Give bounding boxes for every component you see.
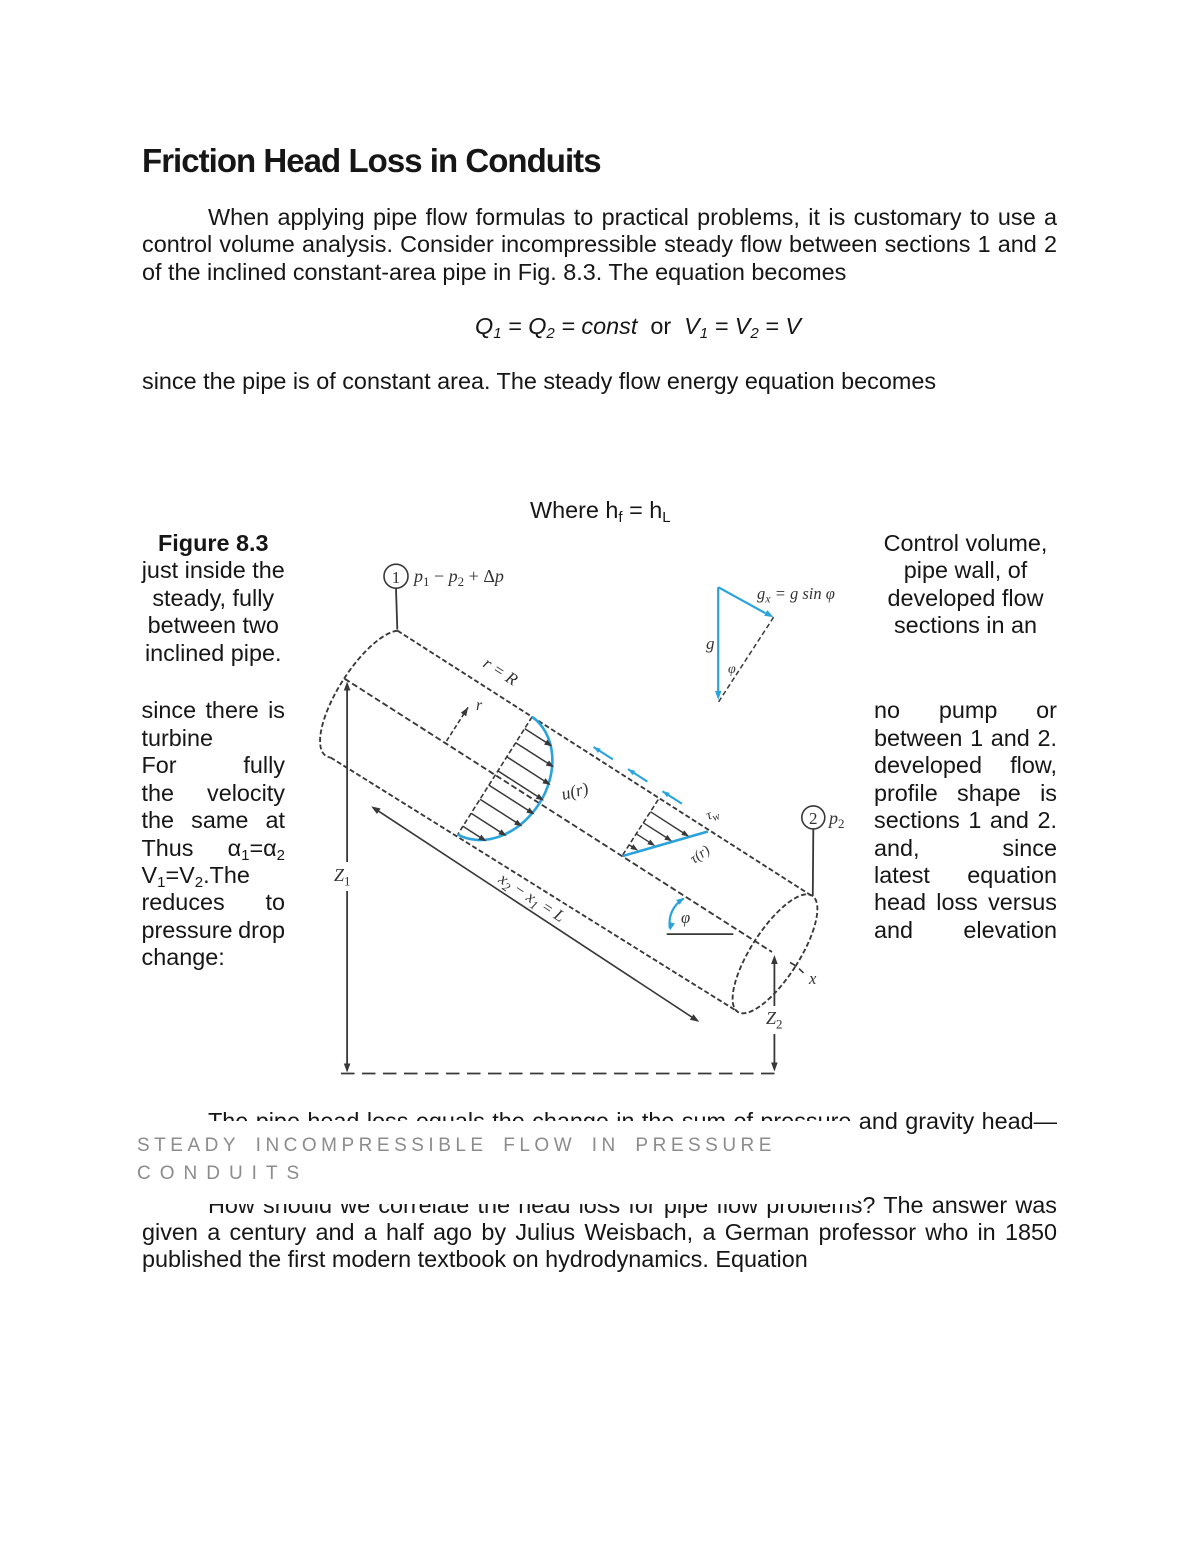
svg-text:τ(r): τ(r) (687, 842, 713, 867)
svg-text:p1 − p2 + Δp: p1 − p2 + Δp (412, 566, 504, 589)
svg-text:1: 1 (392, 568, 401, 587)
svg-text:2: 2 (809, 809, 818, 828)
svg-text:Z1: Z1 (334, 865, 351, 889)
svg-text:u(r): u(r) (559, 778, 590, 804)
svg-text:r = R: r = R (480, 653, 522, 689)
svg-text:r: r (476, 697, 483, 714)
svg-text:x: x (808, 969, 817, 988)
svg-text:g: g (706, 634, 715, 653)
svg-text:gx = g sin φ: gx = g sin φ (757, 584, 835, 606)
svg-text:φ: φ (728, 662, 736, 677)
svg-text:τw: τw (704, 805, 722, 825)
svg-text:p2: p2 (827, 808, 845, 831)
svg-text:Z2: Z2 (766, 1008, 783, 1032)
svg-text:φ: φ (681, 908, 690, 927)
